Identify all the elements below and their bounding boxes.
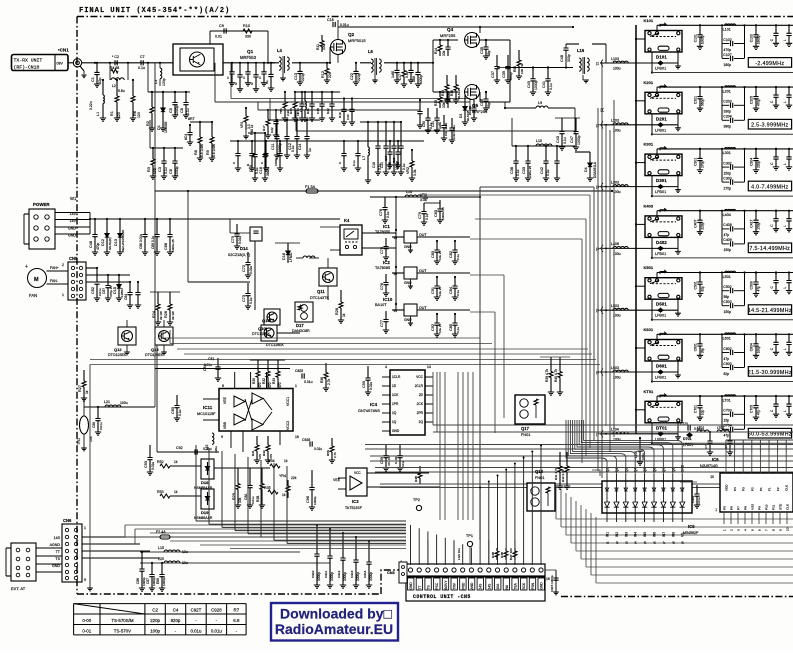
svg-text:C99: C99 [380, 457, 384, 464]
svg-text:PSC: PSC [435, 582, 439, 589]
svg-text:2: 2 [62, 263, 64, 267]
svg-text:C928: C928 [302, 438, 310, 442]
svg-text:C38: C38 [510, 167, 514, 174]
svg-text:1Q: 1Q [392, 411, 397, 415]
svg-text:C72: C72 [242, 265, 246, 272]
svg-text:0.1u: 0.1u [386, 211, 390, 218]
svg-text:L101: L101 [723, 28, 731, 32]
svg-text:1000p: 1000p [534, 80, 538, 90]
svg-text:21.5-30.999MHz: 21.5-30.999MHz [748, 370, 792, 376]
svg-text:GND: GND [404, 318, 412, 322]
svg-text:P11: P11 [772, 504, 776, 510]
svg-text:LT01: LT01 [723, 398, 731, 402]
svg-text:09V: 09V [57, 62, 64, 66]
svg-text:1u50: 1u50 [391, 71, 395, 78]
svg-text:10k: 10k [442, 102, 446, 108]
svg-text:CN3: CN3 [387, 571, 395, 575]
svg-text:FAN+: FAN+ [50, 266, 59, 270]
svg-text:P2: P2 [750, 487, 754, 491]
svg-text:MRF5015: MRF5015 [348, 38, 366, 43]
svg-text:2.5-3.999MHz: 2.5-3.999MHz [751, 123, 788, 129]
svg-text:C84: C84 [449, 287, 453, 294]
svg-text:C14: C14 [298, 144, 302, 150]
svg-text:LG5 10u: LG5 10u [457, 548, 461, 560]
svg-text:1: 1 [62, 293, 64, 297]
svg-text:C66 0.01u: C66 0.01u [139, 234, 143, 249]
svg-text:220u 25: 220u 25 [528, 166, 532, 177]
svg-text:(1: (1 [596, 62, 599, 66]
svg-text:14S: 14S [479, 583, 483, 590]
svg-text:0.01u: 0.01u [99, 422, 103, 430]
svg-text:L20: L20 [158, 557, 164, 561]
svg-text:KT01: KT01 [644, 389, 655, 394]
svg-text:IC3: IC3 [352, 499, 359, 504]
svg-text:390p: 390p [509, 72, 513, 80]
svg-text:(8: (8 [671, 541, 675, 544]
svg-text:C205: C205 [750, 96, 754, 104]
svg-text:POWER: POWER [33, 202, 50, 207]
svg-text:0.1u: 0.1u [549, 83, 553, 90]
svg-text:1k: 1k [284, 459, 288, 463]
svg-text:DANGO8R: DANGO8R [292, 329, 310, 333]
svg-text:K301: K301 [644, 142, 654, 147]
svg-text:VCC: VCC [354, 471, 361, 475]
svg-text:C35: C35 [480, 47, 484, 54]
svg-text:L406: L406 [611, 242, 619, 246]
svg-text:LT04: LT04 [611, 428, 619, 432]
svg-text:9: 9 [221, 435, 223, 439]
svg-text:R13: R13 [441, 90, 445, 96]
svg-text:R33: R33 [272, 378, 276, 384]
svg-text:R21: R21 [306, 108, 310, 114]
svg-text:C301: C301 [694, 158, 698, 166]
svg-text:C912: C912 [337, 570, 341, 578]
svg-text:100p: 100p [757, 346, 761, 353]
svg-text:C101: C101 [694, 34, 698, 42]
svg-text:180p: 180p [724, 63, 732, 67]
svg-text:50.0-53.999MHz: 50.0-53.999MHz [748, 432, 792, 438]
svg-text:2.7k: 2.7k [333, 452, 337, 458]
svg-text:1000p: 1000p [175, 166, 179, 176]
svg-text:1000u 25: 1000u 25 [171, 239, 175, 252]
svg-text:LFB01: LFB01 [655, 252, 666, 256]
svg-text:C43: C43 [556, 136, 560, 143]
svg-text:16: 16 [295, 435, 299, 439]
svg-text:1000p: 1000p [343, 572, 347, 581]
svg-text:6.8: 6.8 [233, 618, 240, 623]
svg-text:1k: 1k [174, 490, 178, 494]
svg-text:150p: 150p [757, 222, 761, 229]
svg-text:1k: 1k [85, 390, 89, 394]
svg-text:C47: C47 [570, 136, 574, 143]
svg-text:#C92B: #C92B [468, 106, 472, 115]
svg-text:L404: L404 [723, 213, 731, 217]
svg-text:14S: 14S [54, 536, 61, 540]
svg-text:TT: TT [418, 586, 422, 590]
svg-text:470p: 470p [96, 243, 100, 250]
svg-text:0.1u: 0.1u [456, 327, 460, 333]
svg-text:C40: C40 [527, 81, 531, 88]
svg-text:R27: R27 [78, 385, 82, 392]
svg-text:C82: C82 [449, 251, 453, 258]
svg-text:470p: 470p [757, 99, 761, 106]
svg-text:68p: 68p [487, 50, 491, 56]
svg-text:4: 4 [385, 365, 387, 369]
svg-text:TRV: TRV [453, 582, 457, 589]
svg-text:R30: R30 [252, 378, 256, 384]
svg-text:Q1: Q1 [606, 467, 610, 472]
svg-text:C201: C201 [694, 96, 698, 104]
svg-text:150p: 150p [724, 248, 732, 252]
svg-text:L16: L16 [577, 48, 585, 53]
svg-text:C914: C914 [363, 570, 367, 578]
svg-text:L203: L203 [611, 119, 619, 123]
svg-text:D13: D13 [114, 239, 118, 246]
svg-text:120: 120 [137, 112, 141, 118]
svg-text:1000p: 1000p [313, 496, 317, 505]
svg-text:C70: C70 [231, 236, 235, 243]
svg-text:D501: D501 [656, 302, 667, 307]
svg-text:1: 1 [295, 384, 297, 388]
svg-text:0.1u: 0.1u [425, 213, 429, 220]
svg-text:100u: 100u [120, 401, 128, 405]
svg-text:R22: R22 [326, 108, 330, 114]
svg-text:L303: L303 [611, 180, 619, 184]
svg-text:1800p: 1800p [757, 35, 761, 44]
svg-text:0.01u: 0.01u [697, 497, 701, 505]
svg-text:Q7: Q7 [662, 467, 666, 472]
svg-text:100: 100 [322, 44, 326, 50]
svg-text:C11: C11 [271, 143, 275, 150]
svg-text:0.01: 0.01 [215, 35, 222, 39]
svg-text:D201: D201 [656, 116, 667, 121]
svg-text:L: L [783, 410, 787, 412]
svg-text:R48: R48 [289, 108, 293, 114]
svg-text:C48: C48 [560, 55, 564, 62]
svg-text:-2.499MHz: -2.499MHz [755, 61, 784, 67]
svg-text:R52: R52 [157, 460, 164, 464]
svg-text:EXT. AT: EXT. AT [11, 586, 26, 591]
svg-text:C604: C604 [750, 343, 754, 351]
svg-text:#R7: #R7 [188, 117, 195, 121]
svg-text:0.1u: 0.1u [178, 409, 182, 416]
svg-text:C90: C90 [362, 381, 366, 388]
svg-text:VR1: VR1 [240, 121, 244, 128]
svg-text:KE2-W105K220: KE2-W105K220 [121, 230, 125, 252]
svg-text:100p: 100p [150, 628, 160, 633]
svg-text:Q8: Q8 [671, 467, 675, 472]
svg-text:R34: R34 [268, 459, 275, 463]
svg-text:C76: C76 [380, 283, 384, 290]
svg-text:VCC2: VCC2 [286, 421, 290, 430]
svg-text:C20: C20 [346, 114, 350, 120]
svg-text:1000p: 1000p [369, 572, 373, 581]
svg-text:9: 9 [84, 578, 86, 582]
svg-text:Q6: Q6 [653, 467, 657, 472]
svg-text:1000p: 1000p [175, 105, 179, 115]
svg-text:D301: D301 [656, 178, 667, 183]
svg-text:68p: 68p [487, 102, 491, 108]
svg-text:0.1u: 0.1u [138, 66, 145, 70]
svg-text:0.1u: 0.1u [186, 108, 190, 115]
svg-text:C7: C7 [140, 55, 145, 59]
svg-text:0.1u: 0.1u [456, 254, 460, 260]
svg-text:D3: D3 [459, 114, 463, 118]
svg-text:C27: C27 [384, 155, 388, 161]
svg-text:150p: 150p [724, 310, 732, 314]
svg-text:L301: L301 [723, 151, 731, 155]
svg-text:P4: P4 [733, 487, 737, 491]
svg-text:VCC: VCC [416, 375, 424, 379]
svg-text:D19: D19 [201, 510, 209, 515]
svg-text:10: 10 [786, 527, 790, 531]
svg-text:FINAL UNIT (X45-354*-**)(A/2): FINAL UNIT (X45-354*-**)(A/2) [79, 7, 230, 15]
svg-text:10p: 10p [701, 410, 705, 416]
svg-text:10k: 10k [238, 497, 242, 503]
svg-text:R31: R31 [251, 450, 255, 456]
svg-text:6: 6 [758, 529, 762, 531]
svg-text:C33: C33 [522, 167, 526, 174]
svg-text:C92: C92 [176, 446, 183, 450]
svg-text:L10: L10 [536, 139, 542, 143]
svg-text:VBB: VBB [223, 421, 227, 429]
svg-text:Q3: Q3 [624, 467, 628, 472]
svg-text:IN2: IN2 [615, 532, 619, 537]
svg-text:0.01u: 0.01u [190, 628, 202, 633]
svg-text:R11: R11 [316, 44, 320, 50]
svg-text:NJU9714G: NJU9714G [700, 464, 718, 468]
svg-text:22k: 22k [328, 72, 332, 78]
svg-text:LFB01: LFB01 [655, 190, 666, 194]
svg-text:GND: GND [540, 582, 544, 590]
svg-text:0.1u: 0.1u [352, 160, 356, 166]
svg-text:CN6: CN6 [63, 518, 72, 523]
svg-text:P3: P3 [742, 487, 746, 491]
svg-text:R2B: R2B [256, 496, 260, 502]
svg-text:MC10115F: MC10115F [197, 412, 216, 416]
svg-text:K4: K4 [344, 218, 350, 223]
svg-text:C18: C18 [327, 18, 334, 22]
svg-text:L601: L601 [723, 337, 731, 341]
svg-text:L: L [783, 348, 787, 350]
svg-text:P6: P6 [730, 506, 734, 510]
svg-text:2CK: 2CK [417, 402, 424, 406]
svg-text:C9: C9 [219, 24, 224, 28]
svg-text:Q2: Q2 [615, 467, 619, 472]
svg-text:C705: C705 [750, 405, 754, 413]
svg-text:TP2: TP2 [413, 498, 420, 502]
svg-text:(1: (1 [606, 541, 610, 544]
svg-text:GN74S74NS: GN74S74NS [358, 409, 380, 413]
svg-text:IC2: IC2 [383, 260, 390, 265]
svg-text:MRF255: MRF255 [440, 33, 456, 38]
svg-text:FNG1: FNG1 [521, 433, 531, 437]
svg-text:1k: 1k [174, 460, 178, 464]
svg-text:L103: L103 [611, 57, 619, 61]
svg-text:C100: C100 [394, 456, 398, 464]
svg-text:R3B: R3B [414, 476, 418, 482]
svg-text:C92: C92 [431, 324, 435, 331]
svg-text:390p: 390p [724, 125, 732, 129]
svg-text:10k: 10k [442, 50, 446, 56]
svg-text:YR4: YR4 [279, 474, 286, 478]
svg-text:R9: R9 [206, 150, 210, 155]
svg-text:TS-570S/M: TS-570S/M [111, 618, 134, 623]
svg-text:L9: L9 [538, 101, 542, 105]
svg-text:0.01u: 0.01u [340, 23, 349, 27]
svg-text:VDD: VDD [725, 484, 729, 491]
svg-text:P1: P1 [759, 487, 763, 491]
svg-text:C62: C62 [91, 287, 95, 294]
svg-text:OUT: OUT [419, 306, 427, 310]
svg-text:BA10T: BA10T [375, 303, 387, 307]
svg-text:LFB0J: LFB0J [289, 252, 293, 262]
svg-text:1u: 1u [265, 80, 269, 84]
svg-text:C501: C501 [694, 281, 698, 289]
svg-text:VSS: VSS [751, 504, 755, 510]
svg-text:C6: C6 [169, 169, 173, 174]
svg-text:R8: R8 [194, 150, 198, 155]
svg-text:39 1W: 39 1W [159, 311, 163, 320]
svg-text:C15: C15 [296, 108, 300, 114]
svg-text:0.22u: 0.22u [89, 101, 93, 110]
svg-text:C22: C22 [350, 73, 354, 80]
svg-text:10u 25: 10u 25 [438, 323, 442, 333]
svg-text:L501: L501 [723, 275, 731, 279]
svg-text:SCK: SCK [522, 582, 526, 590]
svg-text:10u: 10u [182, 561, 188, 565]
svg-text:C4: C4 [173, 607, 179, 612]
svg-text:C913: C913 [350, 570, 354, 578]
svg-text:YB1: YB1 [279, 108, 283, 114]
svg-text:R41 4.7k: R41 4.7k [554, 467, 558, 480]
svg-text:STD: STD [779, 503, 783, 510]
svg-text:4: 4 [744, 529, 748, 531]
svg-text:GND: GND [68, 234, 76, 238]
svg-text:C915 1000p: C915 1000p [550, 575, 554, 592]
svg-text:R19: R19 [338, 112, 342, 118]
svg-text:9: 9 [779, 529, 783, 531]
svg-text:20: 20 [710, 475, 714, 479]
svg-text:D14: D14 [240, 246, 248, 251]
svg-text:GND: GND [681, 464, 685, 472]
svg-text:C81: C81 [208, 357, 214, 361]
svg-text:C78: C78 [379, 209, 383, 216]
svg-text:DTO123EK: DTO123EK [108, 353, 127, 357]
svg-text:R26: R26 [164, 311, 168, 318]
svg-text:C21: C21 [380, 162, 384, 168]
svg-text:K601: K601 [644, 327, 654, 332]
svg-text:C77: C77 [380, 320, 384, 327]
svg-text:R17: R17 [262, 125, 266, 131]
svg-text:L4: L4 [277, 48, 283, 53]
svg-text:L: L [783, 39, 787, 41]
svg-text:BOVY: BOVY [444, 580, 448, 590]
svg-text:F1 5A: F1 5A [305, 185, 316, 189]
svg-text:R40 4.7k: R40 4.7k [554, 369, 558, 382]
svg-text:C910: C910 [311, 570, 315, 578]
svg-text:22k: 22k [291, 476, 297, 480]
svg-text:K201: K201 [644, 80, 654, 85]
svg-text:1PR: 1PR [392, 402, 399, 406]
svg-text:14V: 14V [70, 212, 77, 216]
svg-text:0.01u: 0.01u [369, 382, 373, 390]
svg-text:C80: C80 [431, 251, 435, 258]
svg-text:IN5: IN5 [643, 532, 647, 537]
svg-text:330p: 330p [724, 110, 732, 114]
svg-text:C94 1u50: C94 1u50 [444, 122, 448, 136]
svg-text:R5S: R5S [326, 450, 330, 456]
svg-text:6: 6 [222, 384, 224, 388]
svg-text:L21: L21 [104, 400, 110, 404]
svg-text:82p: 82p [701, 286, 705, 292]
svg-text:C87: C87 [146, 578, 150, 584]
svg-text:R16: R16 [450, 90, 454, 96]
svg-text:DTO123EK: DTO123EK [145, 353, 164, 357]
svg-text:R2: R2 [146, 121, 150, 126]
svg-text:D4: D4 [584, 167, 588, 172]
svg-text:(5: (5 [643, 541, 647, 544]
svg-text:GND: GND [52, 564, 60, 568]
svg-text:P5: P5 [723, 506, 727, 510]
svg-text:C86: C86 [136, 578, 140, 584]
svg-text:DT01: DT01 [656, 425, 668, 430]
svg-text:IC1: IC1 [383, 224, 390, 229]
svg-text:L7: L7 [362, 156, 366, 160]
svg-text:GND: GND [404, 281, 412, 285]
svg-text:C417: C417 [750, 219, 754, 227]
svg-text:C42: C42 [540, 167, 544, 174]
svg-text:C98: C98 [92, 422, 96, 428]
svg-text:VCC1: VCC1 [286, 397, 290, 406]
svg-text:330p: 330p [567, 54, 571, 62]
svg-text:2Q: 2Q [419, 420, 424, 424]
svg-text:560p: 560p [701, 99, 705, 106]
svg-text:R28: R28 [335, 308, 339, 315]
svg-text:0.01u: 0.01u [238, 236, 242, 244]
svg-text:C9A: C9A [244, 493, 248, 500]
svg-text:39p: 39p [701, 348, 705, 354]
svg-text:(RF)-CN10: (RF)-CN10 [14, 65, 40, 71]
svg-text:LT03: LT03 [717, 426, 724, 430]
svg-text:100p: 100p [162, 78, 166, 86]
svg-text:0.01u: 0.01u [204, 363, 212, 367]
svg-text:L: L [783, 163, 787, 165]
svg-text:0-01: 0-01 [82, 628, 91, 633]
svg-text:C701: C701 [694, 405, 698, 413]
svg-text:L2: L2 [112, 84, 116, 88]
svg-text:C30: C30 [422, 121, 426, 127]
svg-text:R48 1k: R48 1k [250, 124, 254, 135]
svg-text:R58: R58 [513, 66, 517, 72]
svg-text:C32 0.01u: C32 0.01u [452, 125, 456, 139]
svg-text:5.6u: 5.6u [118, 89, 125, 93]
svg-text:C5: C5 [169, 108, 173, 113]
svg-text:D101: D101 [656, 55, 667, 60]
svg-text:(3: (3 [624, 541, 628, 544]
svg-text:100 1W: 100 1W [520, 63, 524, 74]
svg-text:IC6: IC6 [712, 457, 719, 462]
svg-text:GND: GND [404, 245, 412, 249]
svg-text:4.0-7.499MHz: 4.0-7.499MHz [751, 184, 788, 190]
svg-text:C69 0.1u: C69 0.1u [151, 236, 155, 249]
svg-text:10A: 10A [496, 583, 500, 590]
svg-text:1000p: 1000p [317, 572, 321, 581]
svg-text:R14: R14 [434, 48, 438, 54]
svg-text:82p: 82p [724, 372, 730, 376]
svg-text:IN7: IN7 [662, 532, 666, 537]
svg-text:TX-RX UNIT: TX-RX UNIT [14, 58, 43, 64]
